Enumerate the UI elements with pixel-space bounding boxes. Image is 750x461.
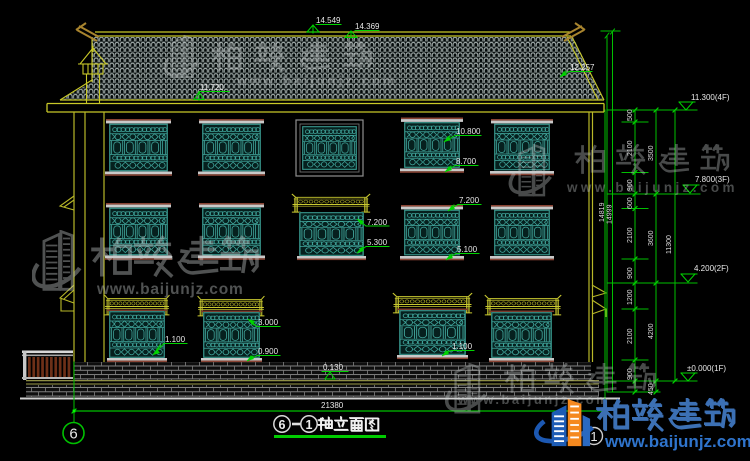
svg-text:500: 500 <box>627 109 634 121</box>
svg-text:www.baijunjz.com: www.baijunjz.com <box>96 281 244 298</box>
svg-text:11.720: 11.720 <box>200 83 224 92</box>
svg-text:6: 6 <box>279 418 286 432</box>
svg-text:14.369: 14.369 <box>355 22 380 31</box>
svg-text:5.300: 5.300 <box>367 238 388 247</box>
svg-text:2100: 2100 <box>627 227 634 243</box>
svg-text:6: 6 <box>69 426 77 443</box>
svg-text:www.baijunjz.com: www.baijunjz.com <box>457 392 610 407</box>
svg-text:14999: 14999 <box>607 204 614 224</box>
svg-text:10.800: 10.800 <box>456 127 481 136</box>
svg-text:600: 600 <box>627 197 634 209</box>
svg-text:14.549: 14.549 <box>316 16 341 25</box>
svg-text:21380: 21380 <box>321 401 344 410</box>
svg-text:7.200: 7.200 <box>459 196 480 205</box>
svg-text:0.900: 0.900 <box>258 347 279 356</box>
svg-text:900: 900 <box>627 267 634 279</box>
svg-text:1: 1 <box>590 429 597 444</box>
svg-text:www.baijunjz.com: www.baijunjz.com <box>236 73 397 88</box>
svg-text:5.100: 5.100 <box>457 245 478 254</box>
svg-text:3600: 3600 <box>648 230 655 246</box>
svg-text:11300: 11300 <box>666 235 673 254</box>
svg-text:2100: 2100 <box>627 328 634 344</box>
svg-text:12.257: 12.257 <box>570 63 595 72</box>
svg-text:1: 1 <box>306 418 313 432</box>
svg-text:1.100: 1.100 <box>165 335 186 344</box>
svg-text:7.200: 7.200 <box>367 218 388 227</box>
svg-text:3500: 3500 <box>648 145 655 161</box>
svg-text:0.130: 0.130 <box>323 363 344 372</box>
svg-text:3.000: 3.000 <box>258 318 279 327</box>
svg-text:±0.000(1F): ±0.000(1F) <box>687 364 726 373</box>
svg-text:www.baijunjz.com: www.baijunjz.com <box>604 432 750 451</box>
svg-text:1.100: 1.100 <box>452 342 473 351</box>
svg-text:4200: 4200 <box>648 323 655 339</box>
svg-text:11.300(4F): 11.300(4F) <box>691 93 730 102</box>
svg-text:www.baijunjz.com: www.baijunjz.com <box>566 180 738 195</box>
svg-text:4.200(2F): 4.200(2F) <box>694 264 729 273</box>
svg-text:1200: 1200 <box>627 289 634 305</box>
svg-text:8.700: 8.700 <box>456 157 477 166</box>
